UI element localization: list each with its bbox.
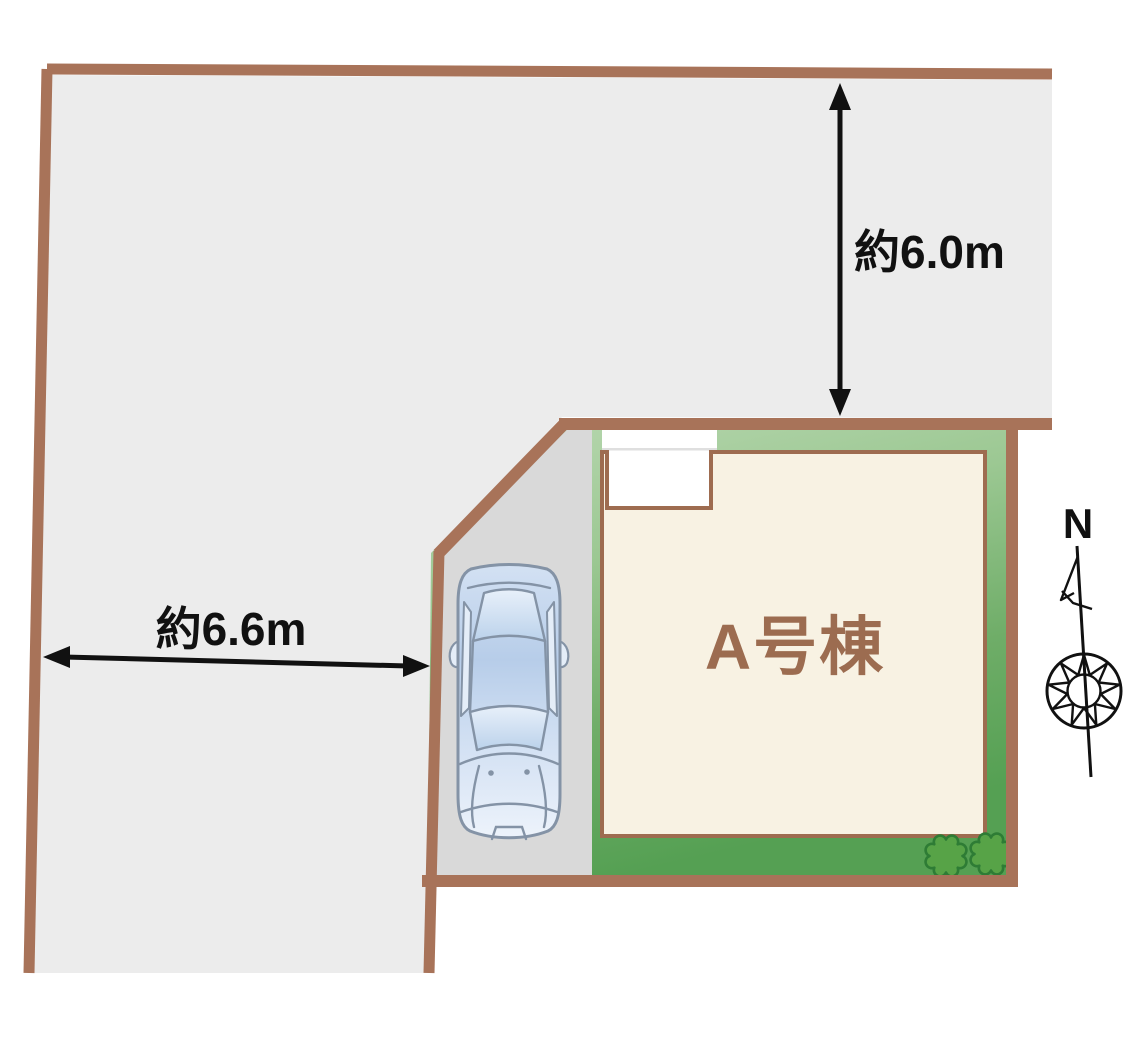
compass-flag-tail xyxy=(1062,591,1092,609)
site-plan-canvas: A号棟 約6.0m 約6.6m xyxy=(0,0,1144,1047)
car-windshield xyxy=(470,706,548,750)
west-dimension-label: 約6.6m xyxy=(156,603,307,655)
north-dimension-label: 約6.0m xyxy=(854,226,1005,278)
compass: N xyxy=(1047,500,1121,777)
car-rear-window xyxy=(473,589,545,641)
car-illustration xyxy=(450,565,569,840)
building-label: A号棟 xyxy=(705,611,885,683)
entrance-porch xyxy=(602,429,717,510)
road-border-top xyxy=(47,69,1052,74)
car-washer-dot xyxy=(524,769,530,775)
car-washer-dot xyxy=(488,770,494,776)
site-plan: A号棟 約6.0m 約6.6m xyxy=(0,0,1144,1047)
porch-step-line xyxy=(602,448,717,451)
compass-needle-line xyxy=(1077,546,1091,777)
compass-north-label: N xyxy=(1063,500,1093,547)
